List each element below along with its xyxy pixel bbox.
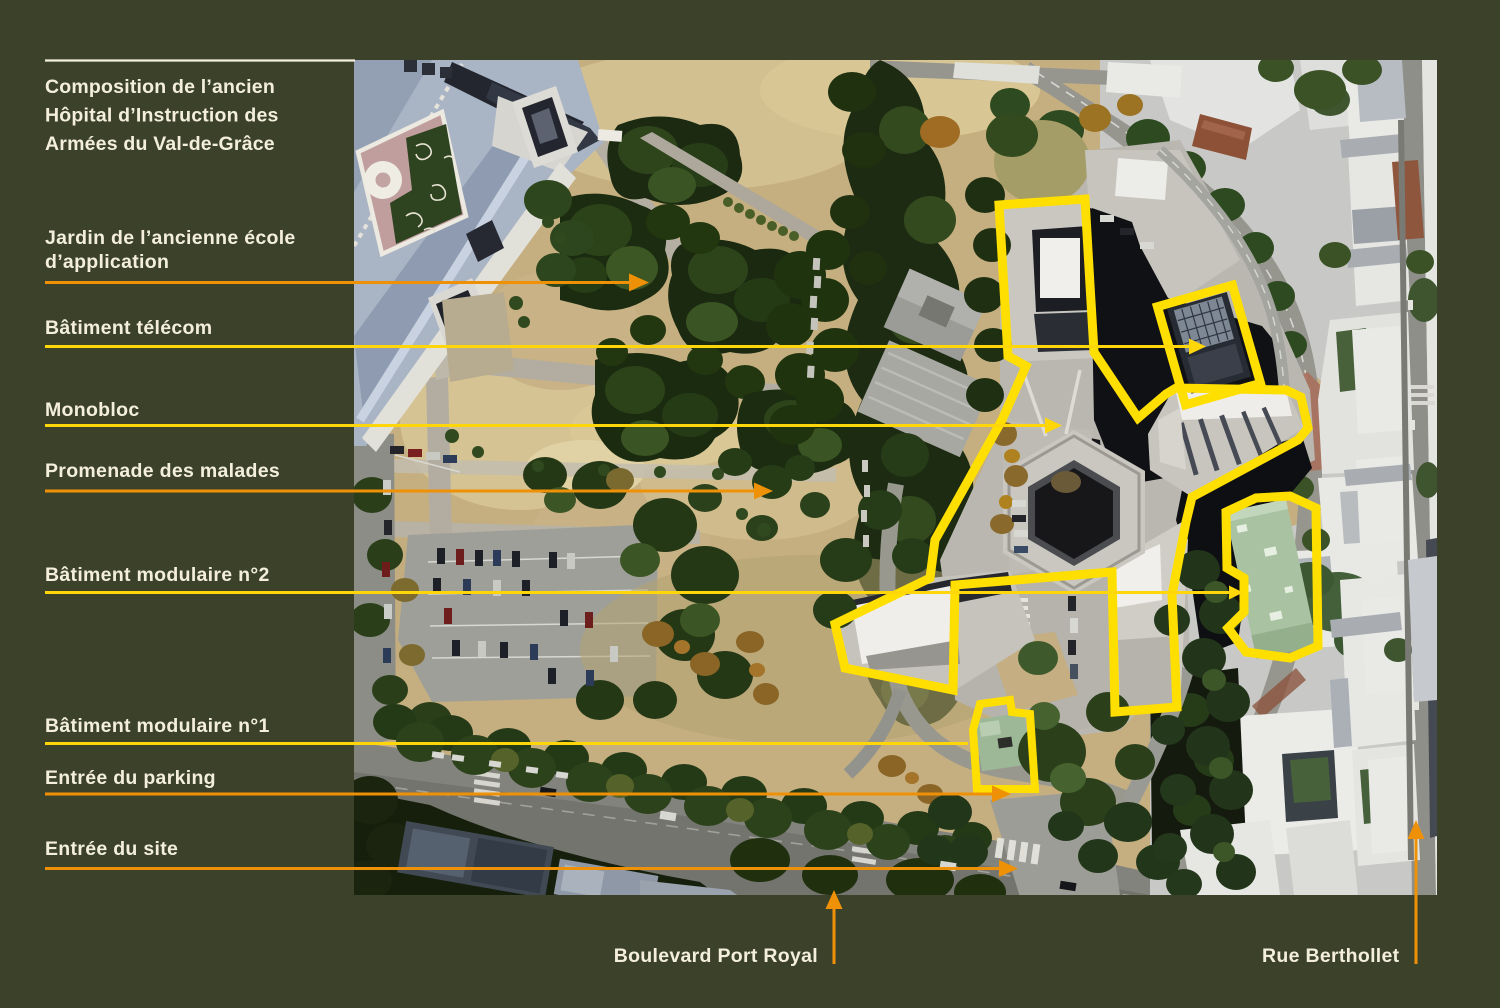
svg-text:Entrée du site: Entrée du site	[45, 838, 178, 860]
svg-text:Bâtiment télécom: Bâtiment télécom	[45, 317, 212, 339]
svg-text:Bâtiment modulaire n°1: Bâtiment modulaire n°1	[45, 715, 270, 737]
svg-text:Rue Berthollet: Rue Berthollet	[1262, 945, 1400, 967]
svg-text:Boulevard Port Royal: Boulevard Port Royal	[614, 945, 818, 967]
svg-text:Composition de l’ancien: Composition de l’ancien	[45, 76, 275, 98]
svg-text:Armées du Val-de-Grâce: Armées du Val-de-Grâce	[45, 133, 275, 155]
svg-text:Entrée du parking: Entrée du parking	[45, 767, 216, 789]
svg-text:Monobloc: Monobloc	[45, 399, 139, 421]
svg-text:d’application: d’application	[45, 251, 169, 273]
svg-text:Hôpital d’Instruction des: Hôpital d’Instruction des	[45, 105, 279, 127]
svg-text:Bâtiment modulaire n°2: Bâtiment modulaire n°2	[45, 564, 270, 586]
svg-text:Jardin de l’ancienne école: Jardin de l’ancienne école	[45, 227, 296, 249]
svg-text:Promenade des malades: Promenade des malades	[45, 460, 280, 482]
